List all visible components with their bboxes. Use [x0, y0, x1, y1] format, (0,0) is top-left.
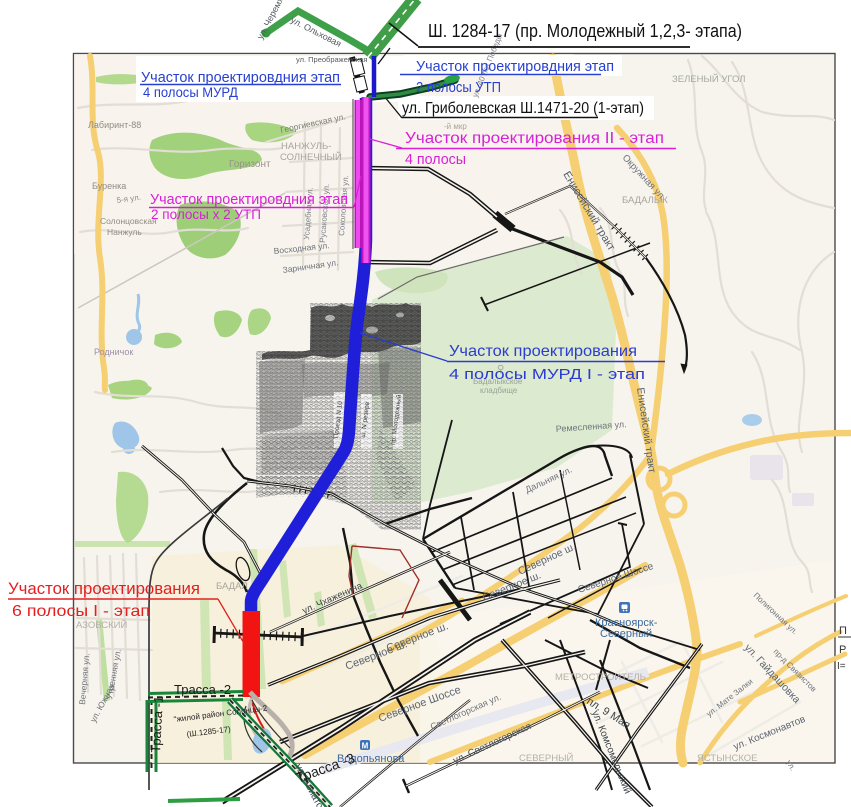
- svg-text:Северный: Северный: [600, 628, 652, 640]
- svg-text:Трасса -2: Трасса -2: [174, 682, 231, 697]
- svg-text:I=: I=: [837, 661, 846, 672]
- svg-text:ЯСТЫНСКОЕ: ЯСТЫНСКОЕ: [697, 753, 758, 764]
- svg-text:4 полосы: 4 полосы: [405, 151, 466, 168]
- svg-text:БАДАЛ: БАДАЛ: [216, 581, 248, 592]
- svg-text:АЗОВСКИЙ: АЗОВСКИЙ: [76, 619, 127, 631]
- svg-text:Участок проектирования: Участок проектирования: [449, 343, 637, 360]
- svg-text:Родничок: Родничок: [94, 347, 133, 357]
- svg-text:СОЛНЕЧНЫЙ: СОЛНЕЧНЫЙ: [280, 151, 342, 163]
- svg-text:Буренка: Буренка: [92, 181, 126, 191]
- svg-text:2 полосы х 2 УТП: 2 полосы х 2 УТП: [151, 206, 261, 222]
- svg-text:Р: Р: [839, 644, 846, 656]
- svg-text:Нанжуль: Нанжуль: [107, 227, 142, 237]
- svg-text:4 полосы МУРД: 4 полосы МУРД: [143, 84, 238, 100]
- svg-text:МЕТРОСТРОИТЕЛЬ: МЕТРОСТРОИТЕЛЬ: [555, 672, 646, 683]
- svg-text:НАНЖУЛЬ-: НАНЖУЛЬ-: [281, 141, 331, 152]
- svg-text:Горизонт: Горизонт: [229, 159, 271, 170]
- svg-text:ул. Преображенская: ул. Преображенская: [296, 55, 367, 64]
- svg-text:Участок проектирования II - эт: Участок проектирования II - этап: [405, 130, 664, 147]
- svg-text:Участок проектировдния этап: Участок проектировдния этап: [416, 58, 614, 75]
- svg-text:кладбище: кладбище: [480, 386, 518, 395]
- svg-text:M: M: [362, 742, 369, 751]
- svg-text:П: П: [839, 625, 847, 637]
- svg-text:Солонцовская: Солонцовская: [100, 216, 157, 226]
- svg-text:СЕВЕРНЫЙ: СЕВЕРНЫЙ: [519, 752, 573, 764]
- svg-text:Лабиринт-88: Лабиринт-88: [88, 120, 141, 130]
- svg-text:2 полосы УТП: 2 полосы УТП: [416, 79, 501, 96]
- svg-text:ЗЕЛЕНЫЙ УГОЛ: ЗЕЛЕНЫЙ УГОЛ: [672, 73, 746, 85]
- svg-text:Трасса -1: Трасса -1: [148, 695, 166, 753]
- svg-text:Участок проектирования: Участок проектирования: [8, 579, 200, 598]
- svg-text:Ш. 1284-17 (пр. Молодежный 1,2: Ш. 1284-17 (пр. Молодежный 1,2,3- этапа): [428, 21, 742, 41]
- svg-text:6 полосы I - этап: 6 полосы I - этап: [12, 603, 150, 620]
- svg-text:4 полосы МУРД I - этап: 4 полосы МУРД I - этап: [449, 366, 645, 383]
- svg-text:ул. Гриболевская Ш.1471-20 (1-: ул. Гриболевская Ш.1471-20 (1-этап): [402, 100, 644, 117]
